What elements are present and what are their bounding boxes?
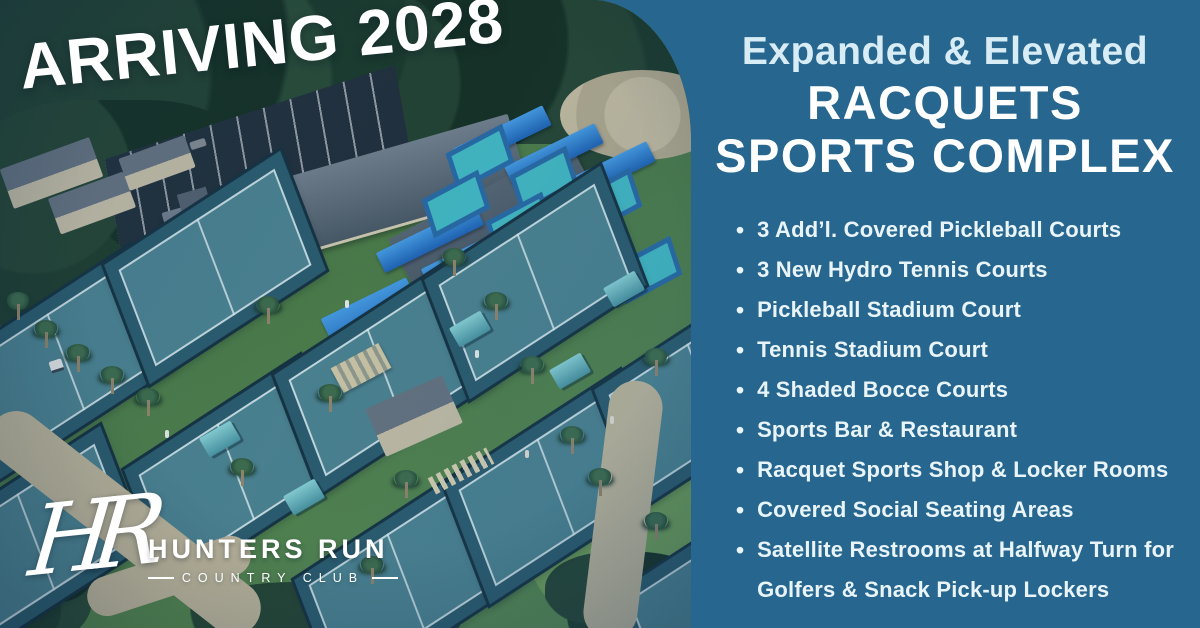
- panel-title-line-2: SPORTS COMPLEX: [690, 129, 1200, 182]
- feature-text: Pickleball Stadium Court: [757, 290, 1021, 330]
- feature-item: •3 Add’l. Covered Pickleball Courts: [736, 210, 1200, 250]
- feature-text: Tennis Stadium Court: [757, 330, 988, 370]
- palm-tree: [588, 468, 612, 500]
- feature-text: 3 New Hydro Tennis Courts: [757, 250, 1048, 290]
- panel-title-line-1: RACQUETS: [690, 76, 1200, 129]
- palm-tree: [230, 458, 254, 490]
- palm-tree: [560, 426, 584, 458]
- palm-tree: [136, 388, 160, 420]
- palm-tree: [318, 384, 342, 416]
- feature-text: 4 Shaded Bocce Courts: [757, 370, 1008, 410]
- feature-text: Sports Bar & Restaurant: [757, 410, 1017, 450]
- feature-text: Satellite Restrooms at Halfway Turn for …: [757, 530, 1200, 610]
- bullet-icon: •: [736, 250, 744, 290]
- tennis-player: [525, 450, 529, 458]
- panel-title: RACQUETS SPORTS COMPLEX: [690, 76, 1200, 182]
- panel-subtitle: Expanded & Elevated: [690, 30, 1200, 74]
- feature-text: Racquet Sports Shop & Locker Rooms: [757, 450, 1168, 490]
- feature-item: •Covered Social Seating Areas: [736, 490, 1200, 530]
- bullet-icon: •: [736, 530, 744, 610]
- club-logo: HR HUNTERS RUN COUNTRY CLUB: [30, 492, 410, 622]
- feature-item: •Tennis Stadium Court: [736, 330, 1200, 370]
- shade-pavilion: [549, 352, 591, 389]
- feature-text: Covered Social Seating Areas: [757, 490, 1074, 530]
- feature-text: 3 Add’l. Covered Pickleball Courts: [757, 210, 1121, 250]
- tennis-player: [165, 430, 169, 438]
- feature-list: •3 Add’l. Covered Pickleball Courts •3 N…: [736, 210, 1200, 610]
- info-panel: Expanded & Elevated RACQUETS SPORTS COMP…: [690, 0, 1200, 628]
- bullet-icon: •: [736, 450, 744, 490]
- palm-tree: [34, 320, 58, 352]
- feature-item: •Sports Bar & Restaurant: [736, 410, 1200, 450]
- bullet-icon: •: [736, 370, 744, 410]
- feature-item: •Racquet Sports Shop & Locker Rooms: [736, 450, 1200, 490]
- feature-item: •4 Shaded Bocce Courts: [736, 370, 1200, 410]
- left-rule: [148, 577, 174, 579]
- right-rule: [372, 577, 398, 579]
- palm-tree: [644, 348, 668, 380]
- palm-tree: [256, 296, 280, 328]
- palm-tree: [442, 248, 466, 280]
- palm-tree: [6, 292, 30, 324]
- hr-monogram-icon: HR: [25, 481, 151, 591]
- palm-tree: [520, 356, 544, 388]
- palm-tree: [644, 512, 668, 544]
- feature-item: •Pickleball Stadium Court: [736, 290, 1200, 330]
- tennis-player: [475, 350, 479, 358]
- tennis-player: [345, 300, 349, 308]
- palm-tree: [484, 292, 508, 324]
- feature-item: •Satellite Restrooms at Halfway Turn for…: [736, 530, 1200, 610]
- bullet-icon: •: [736, 210, 744, 250]
- promo-banner: ARRIVING 2028 HR HUNTERS RUN COUNTRY CLU…: [0, 0, 1200, 628]
- tennis-player: [610, 416, 614, 424]
- club-name: HUNTERS RUN: [148, 534, 398, 565]
- bullet-icon: •: [736, 290, 744, 330]
- bullet-icon: •: [736, 330, 744, 370]
- palm-tree: [66, 344, 90, 376]
- club-subtitle-row: COUNTRY CLUB: [148, 571, 398, 585]
- aerial-rendering: ARRIVING 2028 HR HUNTERS RUN COUNTRY CLU…: [0, 0, 691, 628]
- club-subtitle: COUNTRY CLUB: [182, 571, 364, 585]
- bullet-icon: •: [736, 410, 744, 450]
- palm-tree: [100, 366, 124, 398]
- feature-item: •3 New Hydro Tennis Courts: [736, 250, 1200, 290]
- club-wordmark: HUNTERS RUN COUNTRY CLUB: [148, 534, 398, 585]
- bullet-icon: •: [736, 490, 744, 530]
